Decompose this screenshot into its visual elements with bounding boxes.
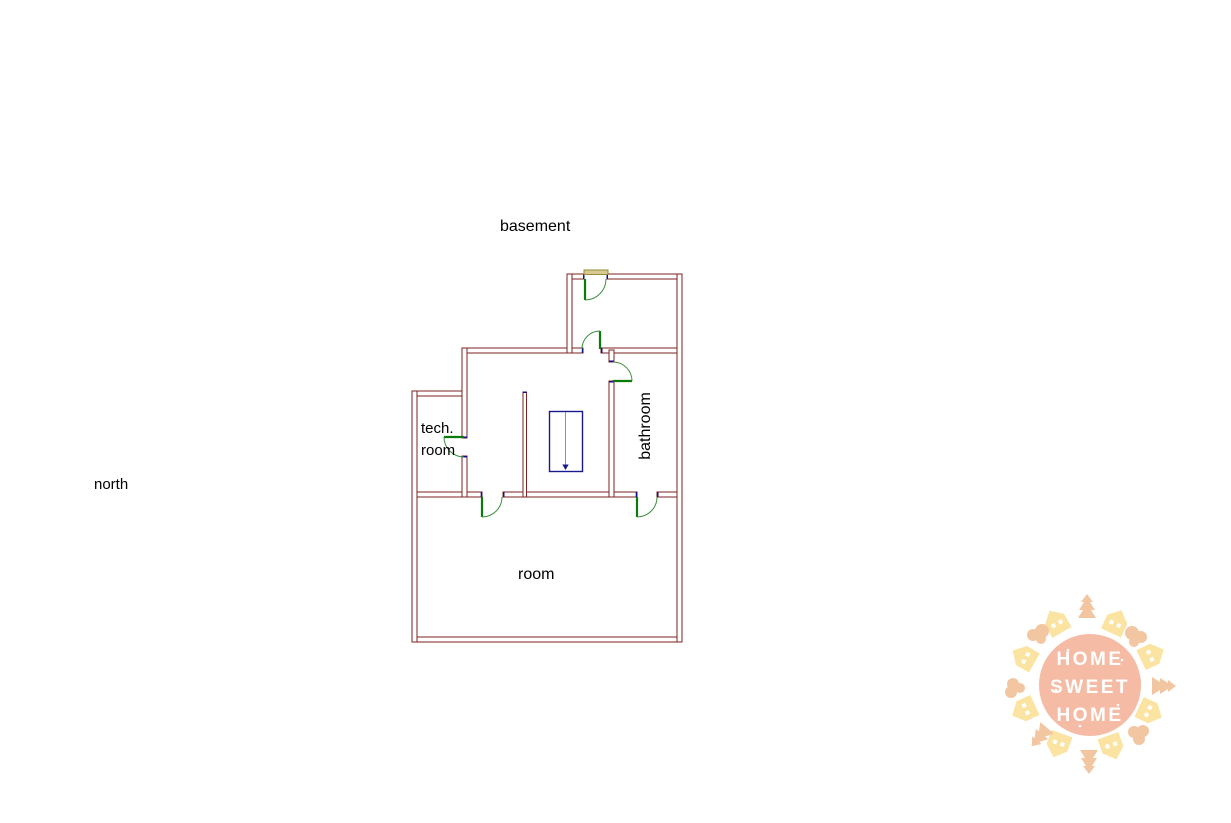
wall-room-bottom [412, 637, 682, 642]
door-entry [585, 279, 606, 300]
wall-outer-right [677, 274, 682, 642]
door-room-left [482, 497, 502, 517]
logo-text-line3: HOME [1057, 705, 1124, 726]
plan-title: basement [500, 218, 571, 235]
wall-hall-top-left [462, 348, 583, 353]
jamb-roomleft-left [481, 492, 483, 497]
wall-outer-left [412, 391, 417, 642]
door-hall-entry-arc [582, 331, 600, 349]
tech-room-label-line2: room [421, 442, 455, 459]
door-room-right-arc [637, 497, 657, 517]
wall-bathroom-left-upper [609, 350, 614, 362]
room-label: room [518, 566, 554, 583]
logo-text-line2: SWEET [1050, 677, 1130, 698]
doors [444, 279, 657, 517]
entry-threshold [584, 270, 608, 275]
wall-hall-left-upper [462, 348, 467, 438]
logo-bush [1125, 626, 1147, 647]
jamb-roomright-right [657, 492, 659, 497]
page-canvas: basement north tech. room bathroom room [0, 0, 1231, 823]
door-room-left-arc [482, 497, 502, 517]
wall-entry-left [567, 274, 572, 353]
wall-hall-left-lower [462, 456, 467, 497]
jamb-hallentry-right [601, 348, 603, 353]
jamb-partition-top [523, 392, 527, 394]
logo-bush [1128, 725, 1149, 745]
door-bathroom-arc [613, 362, 632, 381]
door-entry-arc [585, 279, 606, 300]
logo-bush [1005, 678, 1025, 698]
wall-techroom-top [412, 391, 467, 396]
wall-entry-top-right [607, 274, 682, 279]
stairs [550, 412, 583, 472]
home-sweet-home-logo: HOME SWEET HOME [1005, 594, 1176, 774]
jamb-roomright-left [636, 492, 638, 497]
wall-stairs-partition [523, 392, 527, 497]
door-hall-to-entry [582, 331, 600, 349]
logo-bush [1027, 624, 1049, 644]
logo-text-line1: HOME [1057, 649, 1124, 670]
wall-bathroom-left-lower [609, 381, 614, 497]
wall-band-left [412, 492, 482, 497]
tech-room-label-line1: tech. [421, 420, 454, 437]
bathroom-label: bathroom [637, 392, 654, 460]
door-room-right [637, 497, 657, 517]
door-bathroom [613, 362, 632, 381]
floorplan-svg: basement north tech. room bathroom room [0, 0, 1231, 823]
jamb-roomleft-right [503, 492, 505, 497]
compass-north-label: north [94, 476, 128, 493]
